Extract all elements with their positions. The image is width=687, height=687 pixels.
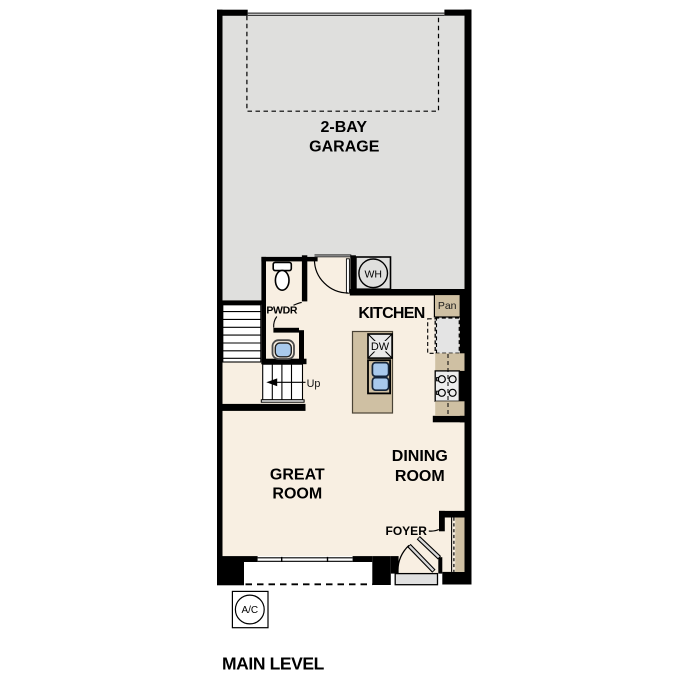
svg-text:Up: Up <box>307 378 321 390</box>
svg-text:2-BAY: 2-BAY <box>321 119 368 136</box>
svg-text:FOYER: FOYER <box>386 524 428 538</box>
svg-text:GREAT: GREAT <box>270 466 325 483</box>
svg-text:DW: DW <box>371 341 390 353</box>
svg-text:ROOM: ROOM <box>272 485 322 502</box>
svg-text:A/C: A/C <box>241 605 258 616</box>
svg-text:GARAGE: GARAGE <box>309 139 380 156</box>
svg-text:PWDR: PWDR <box>266 305 297 317</box>
svg-text:Pan: Pan <box>438 300 457 312</box>
svg-text:MAIN LEVEL: MAIN LEVEL <box>222 653 325 673</box>
svg-text:WH: WH <box>364 268 382 280</box>
svg-text:DINING: DINING <box>392 448 448 465</box>
svg-text:ROOM: ROOM <box>395 468 445 485</box>
svg-text:KITCHEN: KITCHEN <box>358 305 424 322</box>
